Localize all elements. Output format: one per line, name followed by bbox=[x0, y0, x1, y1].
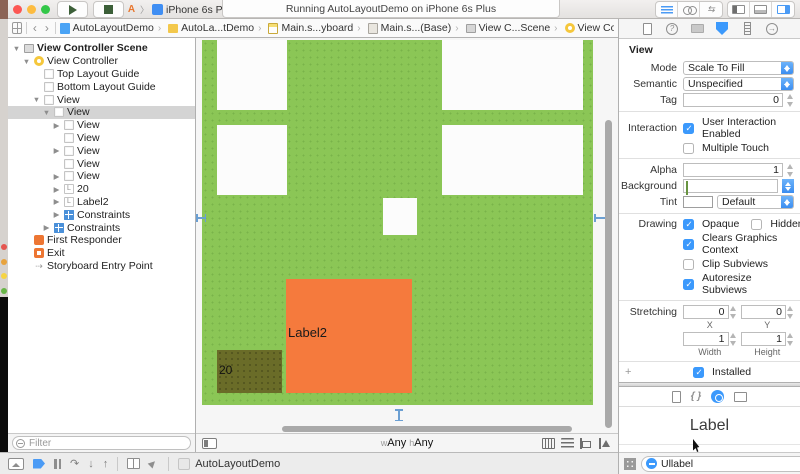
status-text: Running AutoLayoutDemo on iPhone 6s Plus bbox=[286, 3, 496, 15]
library-grid-view-icon[interactable] bbox=[624, 458, 636, 470]
stretch-height-field[interactable]: 1 bbox=[741, 332, 787, 346]
hide-debug-area-button[interactable] bbox=[8, 458, 24, 470]
step-over-icon[interactable]: ↷ bbox=[70, 458, 79, 470]
breadcrumb-item-label: AutoLa...tDemo bbox=[181, 22, 254, 34]
xcode-window: A 〉 iPhone 6s Plus Running AutoLayoutDem… bbox=[0, 0, 800, 474]
outline-row[interactable]: ⇢ Storyboard Entry Point bbox=[8, 260, 195, 273]
background-yellow-dot bbox=[1, 273, 7, 279]
breadcrumb-item-label: View C...Scene bbox=[479, 22, 551, 34]
mode-dropdown[interactable]: Scale To Fill bbox=[683, 61, 794, 75]
tint-label: Tint bbox=[619, 196, 683, 208]
outline-row-label: View bbox=[77, 170, 100, 182]
label2-text: Label2 bbox=[288, 325, 327, 340]
outline-row-label: 20 bbox=[77, 183, 89, 195]
close-window-button[interactable] bbox=[13, 5, 22, 14]
view-debugger-icon[interactable] bbox=[127, 458, 140, 469]
subview-mid-left[interactable] bbox=[217, 125, 287, 195]
connections-inspector-tab[interactable]: → bbox=[765, 22, 779, 36]
assistant-editor-icon bbox=[683, 6, 695, 14]
semantic-dropdown[interactable]: Unspecified bbox=[683, 77, 794, 91]
storyboard-canvas[interactable]: Label2 20 wAny hAny bbox=[196, 38, 618, 452]
standard-editor-icon bbox=[661, 6, 673, 14]
version-editor-icon: ⇆ bbox=[707, 4, 715, 15]
library-search-field[interactable]: × bbox=[641, 456, 800, 472]
tag-label: Tag bbox=[619, 94, 683, 106]
alpha-label: Alpha bbox=[619, 164, 683, 176]
play-icon bbox=[69, 5, 77, 15]
outline-row-label: View Controller Scene bbox=[37, 42, 148, 54]
canvas-horizontal-scrollbar[interactable] bbox=[282, 426, 572, 432]
object-library-icon[interactable] bbox=[711, 390, 724, 403]
filter-icon bbox=[16, 439, 25, 448]
breadcrumb-item-label: Main.s...yboard bbox=[281, 22, 353, 34]
outline-row-icon bbox=[64, 133, 74, 143]
dropdown-stepper-icon bbox=[781, 196, 793, 208]
outline-row-icon: L bbox=[64, 197, 74, 207]
outline-row[interactable]: Bottom Layout Guide bbox=[8, 80, 195, 93]
step-out-icon[interactable]: ↑ bbox=[103, 458, 109, 470]
outline-row[interactable]: ▶ Constraints bbox=[8, 221, 195, 234]
outline-row-label: Storyboard Entry Point bbox=[47, 260, 153, 272]
breadcrumb-item-icon bbox=[368, 23, 378, 34]
user-interaction-checkbox[interactable] bbox=[683, 123, 694, 134]
disclosure-triangle-icon[interactable]: ▶ bbox=[52, 210, 61, 219]
standard-editor-button[interactable] bbox=[656, 2, 678, 17]
stretch-y-field[interactable]: 0 bbox=[741, 305, 787, 319]
breadcrumb: AutoLayoutDemo AutoLa...tDemo Main.s...y… bbox=[60, 22, 614, 34]
semantic-label: Semantic bbox=[619, 78, 683, 90]
related-items-icon[interactable] bbox=[12, 22, 22, 34]
size-inspector-tab[interactable] bbox=[740, 22, 754, 36]
breadcrumb-item-icon bbox=[60, 23, 70, 34]
background-color-well[interactable] bbox=[683, 179, 778, 193]
outline-row-icon bbox=[44, 95, 54, 105]
tint-dropdown[interactable]: Default bbox=[717, 195, 794, 209]
breadcrumb-item[interactable]: AutoLa...tDemo bbox=[154, 22, 254, 34]
activity-status-window: Running AutoLayoutDemo on iPhone 6s Plus bbox=[222, 0, 560, 18]
toolbar: A 〉 iPhone 6s Plus Running AutoLayoutDem… bbox=[0, 0, 800, 19]
outline-row-icon bbox=[34, 56, 44, 66]
breadcrumb-item[interactable]: Main.s...(Base) bbox=[353, 22, 451, 34]
outline-filter-bar bbox=[8, 433, 195, 452]
toggle-navigator-button[interactable] bbox=[728, 2, 750, 17]
navigator-panel-icon bbox=[732, 5, 745, 14]
canvas-vertical-scrollbar[interactable] bbox=[605, 120, 612, 428]
help-icon: ? bbox=[666, 23, 678, 35]
disclosure-triangle-icon[interactable]: ▼ bbox=[42, 108, 51, 117]
embed-in-stack-icon[interactable] bbox=[542, 438, 555, 449]
library-tab-bar: { } bbox=[619, 387, 800, 407]
toggle-debug-area-button[interactable] bbox=[750, 2, 772, 17]
outline-row[interactable]: View bbox=[8, 132, 195, 145]
step-into-icon[interactable]: ↓ bbox=[88, 458, 94, 470]
breadcrumb-item[interactable]: View Controller bbox=[550, 22, 614, 34]
background-window-sliver bbox=[0, 19, 8, 452]
outline-row-label: Top Layout Guide bbox=[57, 68, 139, 80]
outline-row-label: Constraints bbox=[77, 209, 130, 221]
outline-row-icon bbox=[54, 107, 64, 117]
outline-row-icon bbox=[24, 44, 34, 53]
outline-row-label: View bbox=[67, 106, 90, 118]
scheme-selector[interactable]: A 〉 iPhone 6s Plus bbox=[126, 0, 236, 19]
jump-bar: ‹ › AutoLayoutDemo AutoLa...tDemo Main.s… bbox=[8, 19, 618, 38]
run-button[interactable] bbox=[57, 1, 88, 18]
identity-icon bbox=[691, 24, 704, 33]
multiple-touch-checkbox[interactable] bbox=[683, 143, 694, 154]
outline-row[interactable]: ▼ View Controller bbox=[8, 55, 195, 68]
process-name: AutoLayoutDemo bbox=[195, 458, 280, 470]
outline-row-icon bbox=[34, 235, 44, 245]
resolve-autolayout-icon[interactable] bbox=[599, 438, 612, 449]
align-icon[interactable] bbox=[561, 438, 574, 449]
file-icon bbox=[643, 23, 652, 35]
subview-top-right[interactable] bbox=[442, 40, 583, 110]
assistant-editor-button[interactable] bbox=[678, 2, 700, 17]
outline-row[interactable]: ▶ View bbox=[8, 119, 195, 132]
label20-view[interactable]: 20 bbox=[217, 350, 282, 393]
disclosure-triangle-icon[interactable]: ▼ bbox=[12, 44, 21, 53]
version-editor-button[interactable]: ⇆ bbox=[700, 2, 722, 17]
attributes-inspector-tab[interactable] bbox=[715, 22, 729, 36]
outline-row-icon bbox=[34, 248, 44, 258]
connections-icon: → bbox=[766, 23, 778, 35]
outline-row-icon bbox=[44, 69, 54, 79]
background-label: Background bbox=[619, 180, 683, 192]
background-color-swatch bbox=[686, 181, 688, 195]
identity-inspector-tab[interactable] bbox=[690, 22, 704, 36]
outline-row-icon bbox=[44, 82, 54, 92]
canvas-bottom-bar: wAny hAny bbox=[196, 433, 618, 452]
breadcrumb-item[interactable]: View C...Scene bbox=[451, 22, 550, 34]
subview-mid-right[interactable] bbox=[442, 125, 583, 195]
breadcrumb-item-label: Main.s...(Base) bbox=[381, 22, 452, 34]
pause-button[interactable] bbox=[54, 459, 61, 469]
file-inspector-tab[interactable] bbox=[640, 22, 654, 36]
disclosure-triangle-icon[interactable]: ▼ bbox=[32, 95, 41, 104]
simulate-location-icon[interactable] bbox=[149, 459, 159, 469]
document-outline: ▼ View Controller Scene ▼ View Controlle… bbox=[8, 38, 196, 452]
inspector-tab-bar: ? → bbox=[619, 19, 800, 39]
autoresize-subviews-checkbox[interactable] bbox=[683, 279, 694, 290]
outline-tree: ▼ View Controller Scene ▼ View Controlle… bbox=[8, 38, 195, 272]
bottom-constraint-icon[interactable] bbox=[398, 409, 400, 421]
disclosure-triangle-icon[interactable]: ▶ bbox=[42, 223, 51, 232]
outline-row[interactable]: ▶ Constraints bbox=[8, 208, 195, 221]
background-green-dot bbox=[1, 288, 7, 294]
debug-bar: ↷ ↓ ↑ AutoLayoutDemo bbox=[0, 452, 618, 474]
outline-row-icon bbox=[64, 146, 74, 156]
x-axis-label: X bbox=[683, 320, 737, 330]
width-axis-label: Width bbox=[683, 347, 737, 357]
mode-label: Mode bbox=[619, 62, 683, 74]
add-variation-button[interactable]: + bbox=[625, 366, 631, 378]
outline-row-icon: ⇢ bbox=[34, 261, 44, 271]
inspector-section-title: View bbox=[619, 39, 800, 59]
app-logo-icon: A bbox=[126, 4, 137, 15]
stretch-width-field[interactable]: 1 bbox=[683, 332, 729, 346]
media-library-icon[interactable] bbox=[734, 392, 747, 402]
utilities-panel-icon bbox=[777, 5, 790, 14]
stretching-label: Stretching bbox=[619, 306, 683, 318]
outline-row-label: Exit bbox=[47, 247, 65, 259]
outline-row-label: View bbox=[77, 119, 100, 131]
stretch-x-field[interactable]: 0 bbox=[683, 305, 729, 319]
utilities-panel: ? → View Mode Scale To Fill Semantic Uns… bbox=[618, 19, 800, 474]
outline-row[interactable]: Top Layout Guide bbox=[8, 68, 195, 81]
interaction-label: Interaction bbox=[619, 122, 683, 134]
outline-row-icon: L bbox=[64, 184, 74, 194]
installed-checkbox[interactable] bbox=[693, 367, 704, 378]
library-item-label[interactable]: Label bbox=[619, 407, 800, 445]
outline-row[interactable]: Exit bbox=[8, 247, 195, 260]
code-snippet-library-icon[interactable]: { } bbox=[691, 391, 702, 402]
dropdown-stepper-icon bbox=[781, 78, 793, 90]
pin-constraints-icon[interactable] bbox=[580, 438, 593, 449]
opaque-checkbox[interactable] bbox=[683, 219, 694, 230]
disclosure-triangle-icon[interactable]: ▶ bbox=[52, 197, 61, 206]
zoom-window-button[interactable] bbox=[41, 5, 50, 14]
background-red-dot bbox=[1, 244, 7, 250]
subview-center-small[interactable] bbox=[383, 198, 417, 235]
outline-row-icon bbox=[54, 223, 64, 233]
outline-row-label: View bbox=[77, 132, 100, 144]
forward-button[interactable]: › bbox=[43, 21, 51, 35]
breadcrumb-item-icon bbox=[268, 23, 278, 34]
outline-row-icon bbox=[64, 210, 74, 220]
selected-green-view[interactable]: Label2 20 bbox=[202, 40, 593, 405]
file-template-library-icon[interactable] bbox=[672, 391, 681, 403]
library-search-bar: × bbox=[619, 452, 800, 474]
debug-area-icon bbox=[754, 5, 767, 14]
toggle-utilities-button[interactable] bbox=[772, 2, 794, 17]
outline-row[interactable]: ▼ View Controller Scene bbox=[8, 42, 195, 55]
outline-row-label: View bbox=[77, 158, 100, 170]
clears-graphics-checkbox[interactable] bbox=[683, 239, 694, 250]
outline-filter-input[interactable] bbox=[12, 436, 191, 450]
ruler-icon bbox=[744, 22, 751, 35]
outline-row[interactable]: ▼ View bbox=[8, 106, 195, 119]
editor-mode-control: ⇆ bbox=[655, 1, 723, 18]
outline-row-label: Bottom Layout Guide bbox=[57, 81, 156, 93]
drawing-label: Drawing bbox=[619, 218, 683, 230]
disclosure-triangle-icon[interactable]: ▶ bbox=[52, 185, 61, 194]
breadcrumb-item-label: AutoLayoutDemo bbox=[73, 22, 154, 34]
attributes-shield-icon bbox=[716, 22, 728, 35]
background-orange-dot bbox=[1, 259, 7, 265]
outline-row-label: View Controller bbox=[47, 55, 118, 67]
breadcrumb-item-icon bbox=[466, 24, 476, 33]
label2-view[interactable]: Label2 bbox=[286, 279, 412, 393]
outline-row[interactable]: ▶ View bbox=[8, 144, 195, 157]
disclosure-triangle-icon[interactable]: ▶ bbox=[52, 121, 61, 130]
clip-subviews-checkbox[interactable] bbox=[683, 259, 694, 270]
stop-icon bbox=[104, 5, 113, 14]
hidden-checkbox[interactable] bbox=[751, 219, 762, 230]
quick-help-tab[interactable]: ? bbox=[665, 22, 679, 36]
breakpoints-toggle-icon[interactable] bbox=[33, 459, 45, 469]
process-indicator[interactable]: AutoLayoutDemo bbox=[178, 458, 280, 470]
tint-color-well[interactable] bbox=[683, 196, 713, 208]
height-axis-label: Height bbox=[741, 347, 795, 357]
breadcrumb-item-icon bbox=[565, 23, 575, 33]
outline-row-icon bbox=[64, 120, 74, 130]
back-button[interactable]: ‹ bbox=[31, 21, 39, 35]
breadcrumb-item[interactable]: AutoLayoutDemo bbox=[60, 22, 154, 34]
mouse-cursor-icon bbox=[693, 439, 702, 452]
leading-constraint-icon[interactable] bbox=[196, 217, 206, 219]
outline-row[interactable]: ▼ View bbox=[8, 93, 195, 106]
stop-button[interactable] bbox=[93, 1, 124, 18]
minimize-window-button[interactable] bbox=[27, 5, 36, 14]
breadcrumb-item[interactable]: Main.s...yboard bbox=[254, 22, 353, 34]
device-icon bbox=[152, 4, 163, 15]
outline-row[interactable]: View bbox=[8, 157, 195, 170]
outline-row-label: First Responder bbox=[47, 234, 122, 246]
dropdown-stepper-icon bbox=[781, 62, 793, 74]
disclosure-triangle-icon[interactable]: ▶ bbox=[52, 172, 61, 181]
alpha-stepper[interactable] bbox=[787, 164, 794, 177]
subview-top-left[interactable] bbox=[217, 40, 287, 110]
outline-row-label: Constraints bbox=[67, 222, 120, 234]
background-window-sliver-top bbox=[0, 0, 8, 19]
search-scope-icon bbox=[646, 458, 657, 469]
outline-row[interactable]: ▶ L 20 bbox=[8, 183, 195, 196]
process-app-icon bbox=[178, 458, 190, 470]
library-search-input[interactable] bbox=[661, 458, 796, 470]
label20-text: 20 bbox=[219, 363, 232, 377]
outline-row-label: Label2 bbox=[77, 196, 109, 208]
breadcrumb-item-label: View Controller bbox=[578, 22, 615, 34]
outline-row-icon bbox=[64, 159, 74, 169]
workspace-panels-control bbox=[727, 1, 795, 18]
tag-stepper[interactable] bbox=[787, 94, 794, 107]
disclosure-triangle-icon[interactable]: ▼ bbox=[22, 57, 31, 66]
outline-row-icon bbox=[64, 171, 74, 181]
outline-row[interactable]: ▶ View bbox=[8, 170, 195, 183]
outline-row[interactable]: First Responder bbox=[8, 234, 195, 247]
disclosure-triangle-icon[interactable]: ▶ bbox=[52, 146, 61, 155]
alpha-field[interactable]: 1 bbox=[683, 163, 783, 177]
tag-field[interactable]: 0 bbox=[683, 93, 783, 107]
outline-row-label: View bbox=[57, 94, 80, 106]
breadcrumb-item-icon bbox=[168, 24, 178, 33]
outline-row[interactable]: ▶ L Label2 bbox=[8, 196, 195, 209]
y-axis-label: Y bbox=[741, 320, 795, 330]
dropdown-stepper-icon[interactable] bbox=[782, 179, 794, 193]
outline-row-label: View bbox=[77, 145, 100, 157]
